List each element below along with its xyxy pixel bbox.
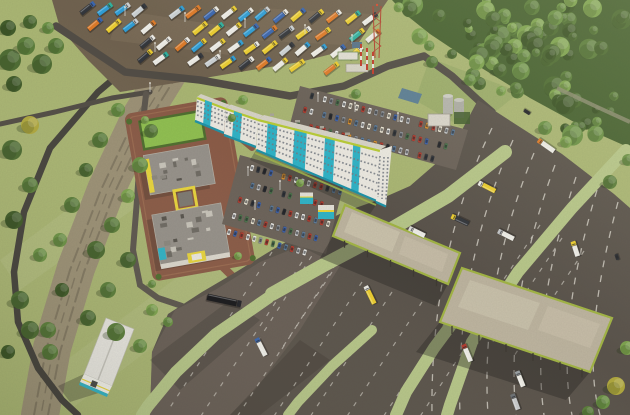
- aerial-render: [0, 0, 630, 415]
- scene-canvas: [0, 0, 630, 415]
- grain-overlay: [0, 0, 630, 415]
